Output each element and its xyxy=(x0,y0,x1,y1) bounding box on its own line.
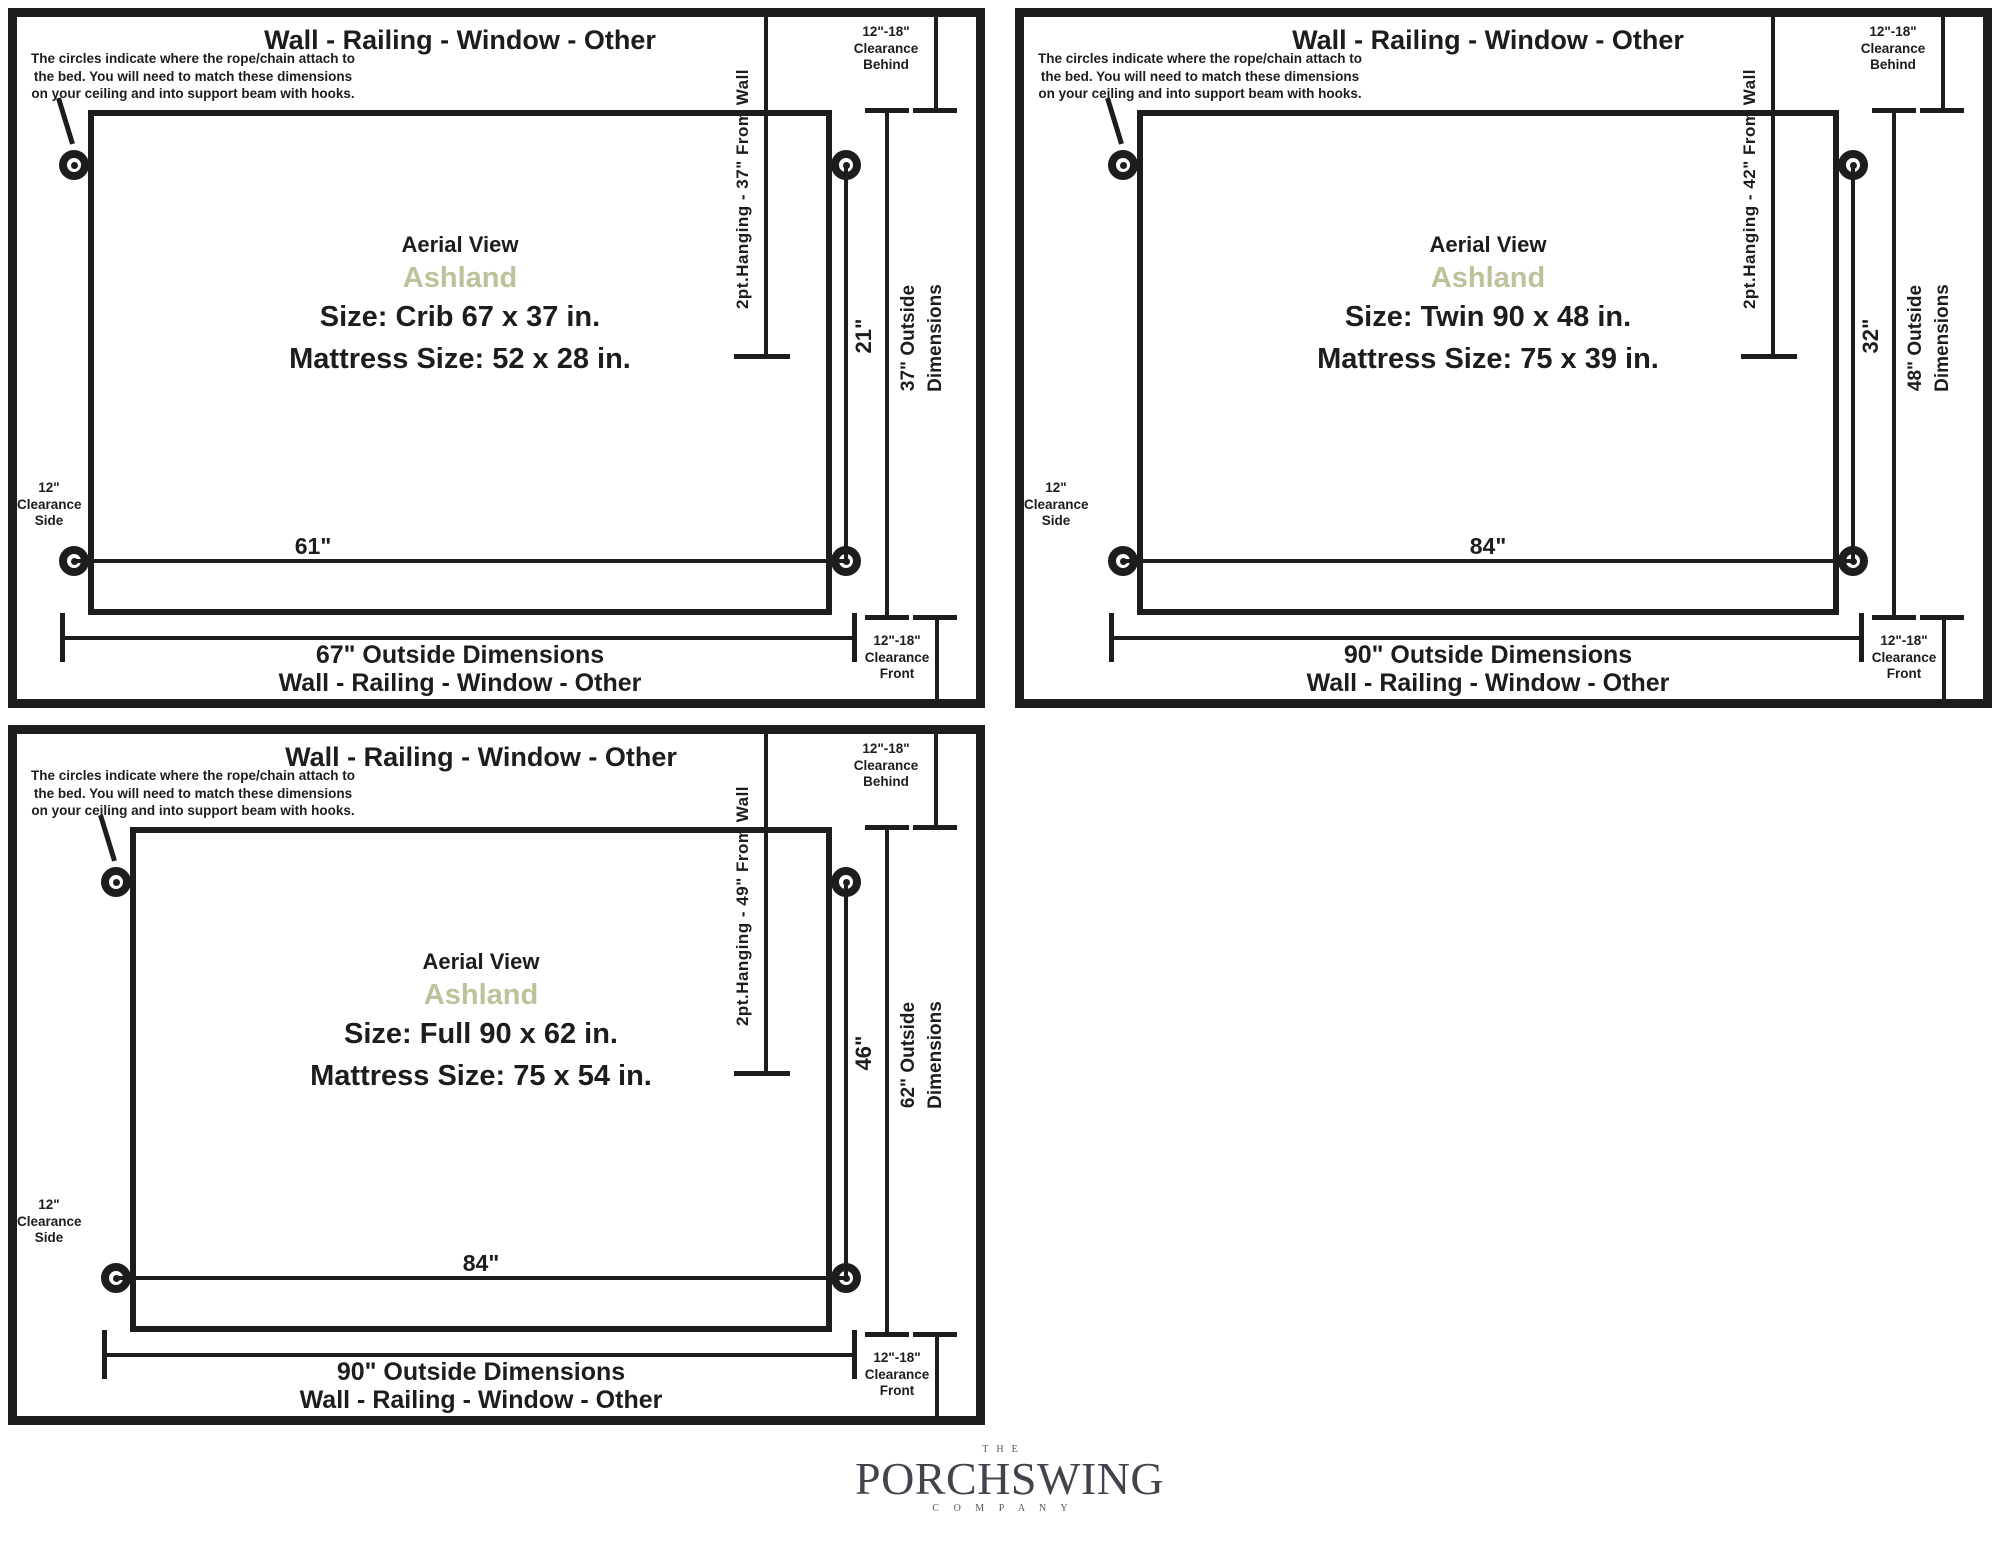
span-dimension-line xyxy=(73,559,847,563)
mattress-size-label: Mattress Size: 75 x 39 in. xyxy=(1137,338,1839,380)
diagram-panel-full: Wall - Railing - Window - Other The circ… xyxy=(8,725,985,1425)
note-text: The circles indicate where the rope/chai… xyxy=(19,767,367,820)
logo-name-text: PORCHSWING xyxy=(855,1455,1145,1503)
outside-depth-line xyxy=(885,827,889,1337)
aerial-view-label: Aerial View xyxy=(130,947,832,977)
span-dimension-label: 84" xyxy=(1470,533,1507,560)
span-dimension-label: 84" xyxy=(463,1250,500,1277)
depth-dimension-label: 21" xyxy=(851,319,877,354)
outside-width-line xyxy=(104,1353,852,1357)
outside-depth-label: 37" Outside Dimensions xyxy=(895,284,949,392)
attachment-circle-top-left xyxy=(59,150,89,180)
diagram-panel-twin: Wall - Railing - Window - Other The circ… xyxy=(1015,8,1992,708)
clearance-side-label: 12" Clearance Side xyxy=(1024,480,1088,530)
outside-depth-label: 48" Outside Dimensions xyxy=(1902,284,1956,392)
bed-text-block: Aerial View Ashland Size: Crib 67 x 37 i… xyxy=(88,230,832,380)
hanging-line-endcap xyxy=(734,1071,790,1076)
outside-width-line xyxy=(1111,636,1859,640)
clearance-behind-label: 12"-18" Clearance Behind xyxy=(836,741,936,791)
outside-width-line xyxy=(62,636,852,640)
mattress-size-label: Mattress Size: 52 x 28 in. xyxy=(88,338,832,380)
hanging-dimension-line xyxy=(764,17,768,358)
clearance-front-label: 12"-18" Clearance Front xyxy=(1858,633,1950,683)
clearance-front-label: 12"-18" Clearance Front xyxy=(851,1350,943,1400)
depth-dimension-line xyxy=(1851,165,1855,561)
aerial-view-label: Aerial View xyxy=(88,230,832,260)
clearance-side-label: 12" Clearance Side xyxy=(17,1197,81,1247)
pointer-line xyxy=(56,97,75,144)
clearance-front-label: 12"-18" Clearance Front xyxy=(851,633,943,683)
aerial-view-label: Aerial View xyxy=(1137,230,1839,260)
clearance-side-label: 12" Clearance Side xyxy=(17,480,81,530)
outside-depth-line xyxy=(1892,110,1896,620)
depth-dimension-line xyxy=(844,882,848,1278)
hanging-line-endcap xyxy=(1741,354,1797,359)
outside-width-label: 90" Outside Dimensions xyxy=(130,1358,832,1387)
pointer-line xyxy=(98,814,117,861)
pointer-line xyxy=(1105,97,1124,144)
bed-text-block: Aerial View Ashland Size: Full 90 x 62 i… xyxy=(130,947,832,1097)
hanging-dimension-line xyxy=(764,734,768,1075)
hanging-dimension-line xyxy=(1771,17,1775,358)
outside-width-tick-left xyxy=(60,613,65,662)
attachment-circle-top-left xyxy=(1108,150,1138,180)
size-label: Size: Crib 67 x 37 in. xyxy=(88,296,832,338)
outside-depth-tick-bottom xyxy=(1872,615,1916,620)
outside-depth-line xyxy=(885,110,889,620)
size-label: Size: Twin 90 x 48 in. xyxy=(1137,296,1839,338)
model-name: Ashland xyxy=(1137,260,1839,296)
outside-width-tick-left xyxy=(1109,613,1114,662)
depth-dimension-label: 32" xyxy=(1858,319,1884,354)
clearance-behind-tick xyxy=(913,108,957,113)
note-text: The circles indicate where the rope/chai… xyxy=(1026,50,1374,103)
outside-depth-label: 62" Outside Dimensions xyxy=(895,1001,949,1109)
mattress-size-label: Mattress Size: 75 x 54 in. xyxy=(130,1055,832,1097)
outside-depth-tick-bottom xyxy=(865,615,909,620)
clearance-behind-tick xyxy=(1920,108,1964,113)
hanging-line-endcap xyxy=(734,354,790,359)
clearance-behind-label: 12"-18" Clearance Behind xyxy=(1843,24,1943,74)
outside-width-tick-left xyxy=(102,1330,107,1379)
depth-dimension-label: 46" xyxy=(851,1036,877,1071)
outside-width-label: 90" Outside Dimensions xyxy=(1137,641,1839,670)
depth-dimension-line xyxy=(844,165,848,561)
note-text: The circles indicate where the rope/chai… xyxy=(19,50,367,103)
porchswing-company-logo: THE PORCHSWING C O M P A N Y xyxy=(855,1444,1145,1514)
hanging-dimension-label: 2pt.Hanging - 42" From Wall xyxy=(1740,69,1760,309)
hanging-dimension-label: 2pt.Hanging - 37" From Wall xyxy=(733,69,753,309)
clearance-behind-tick xyxy=(913,825,957,830)
size-label: Size: Full 90 x 62 in. xyxy=(130,1013,832,1055)
outside-depth-tick-bottom xyxy=(865,1332,909,1337)
clearance-behind-label: 12"-18" Clearance Behind xyxy=(836,24,936,74)
outside-depth-tick-top xyxy=(865,108,909,113)
wall-label-bottom: Wall - Railing - Window - Other xyxy=(1137,669,1839,698)
model-name: Ashland xyxy=(88,260,832,296)
bed-text-block: Aerial View Ashland Size: Twin 90 x 48 i… xyxy=(1137,230,1839,380)
wall-label-bottom: Wall - Railing - Window - Other xyxy=(130,1386,832,1415)
outside-depth-tick-top xyxy=(1872,108,1916,113)
attachment-circle-top-left xyxy=(101,867,131,897)
logo-company-text: C O M P A N Y xyxy=(855,1503,1145,1514)
span-dimension-label: 61" xyxy=(295,533,332,560)
diagram-panel-crib: Wall - Railing - Window - Other The circ… xyxy=(8,8,985,708)
outside-depth-tick-top xyxy=(865,825,909,830)
dimension-sheet: Wall - Railing - Window - Other The circ… xyxy=(0,0,2000,1545)
hanging-dimension-label: 2pt.Hanging - 49" From Wall xyxy=(733,786,753,1026)
outside-width-label: 67" Outside Dimensions xyxy=(88,641,832,670)
model-name: Ashland xyxy=(130,977,832,1013)
wall-label-bottom: Wall - Railing - Window - Other xyxy=(88,669,832,698)
